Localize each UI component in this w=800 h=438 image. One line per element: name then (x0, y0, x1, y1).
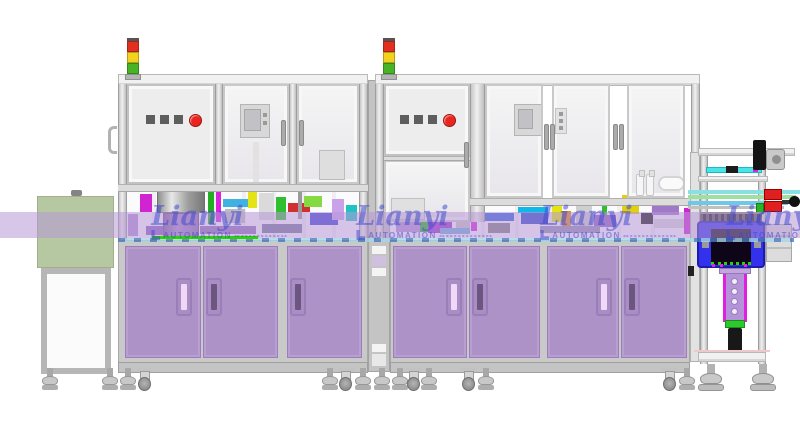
leveling-foot (102, 368, 118, 392)
foot-cone (42, 376, 58, 385)
status-green-line (152, 236, 258, 239)
caster-wheel-disc (339, 377, 352, 391)
leveling-foot (478, 368, 494, 392)
foot-pad (679, 385, 695, 390)
station-leveling-foot (750, 364, 776, 392)
caster-wheel (461, 368, 477, 392)
foot-pad (698, 384, 724, 391)
foot-cone (752, 373, 774, 384)
foot-pad (478, 385, 494, 390)
foot-pad (750, 384, 776, 391)
foot-cone (322, 376, 338, 385)
caster-wheel (662, 368, 678, 392)
caster-wheel (338, 368, 354, 392)
station-leveling-foot (698, 364, 724, 392)
machine-line-render: LianyiAUTOMATIONLianyiAUTOMATIONLianyiAU… (0, 0, 800, 438)
foot-cone (421, 376, 437, 385)
foot-cone (679, 376, 695, 385)
foot-cone (700, 373, 722, 384)
foot-pad (102, 385, 118, 390)
leveling-foot (42, 368, 58, 392)
foot-pad (374, 385, 390, 390)
leveling-foot (679, 368, 695, 392)
foot-pad (421, 385, 437, 390)
leveling-foot (322, 368, 338, 392)
leveling-foot (120, 368, 136, 392)
leveling-foot (421, 368, 437, 392)
leveling-foot (355, 368, 371, 392)
caster-wheel (406, 368, 422, 392)
caster-wheel-disc (663, 377, 676, 391)
foot-pad (42, 385, 58, 390)
foot-pad (322, 385, 338, 390)
foot-cone (102, 376, 118, 385)
foot-pad (120, 385, 136, 390)
foot-cone (355, 376, 371, 385)
foot-cone (478, 376, 494, 385)
conveyor-band (0, 212, 800, 238)
caster-wheel (137, 368, 153, 392)
foot-cone (374, 376, 390, 385)
foot-cone (120, 376, 136, 385)
caster-wheel-disc (407, 377, 420, 391)
caster-wheel-disc (138, 377, 151, 391)
caster-wheel-disc (462, 377, 475, 391)
foot-pad (355, 385, 371, 390)
leveling-foot (374, 368, 390, 392)
